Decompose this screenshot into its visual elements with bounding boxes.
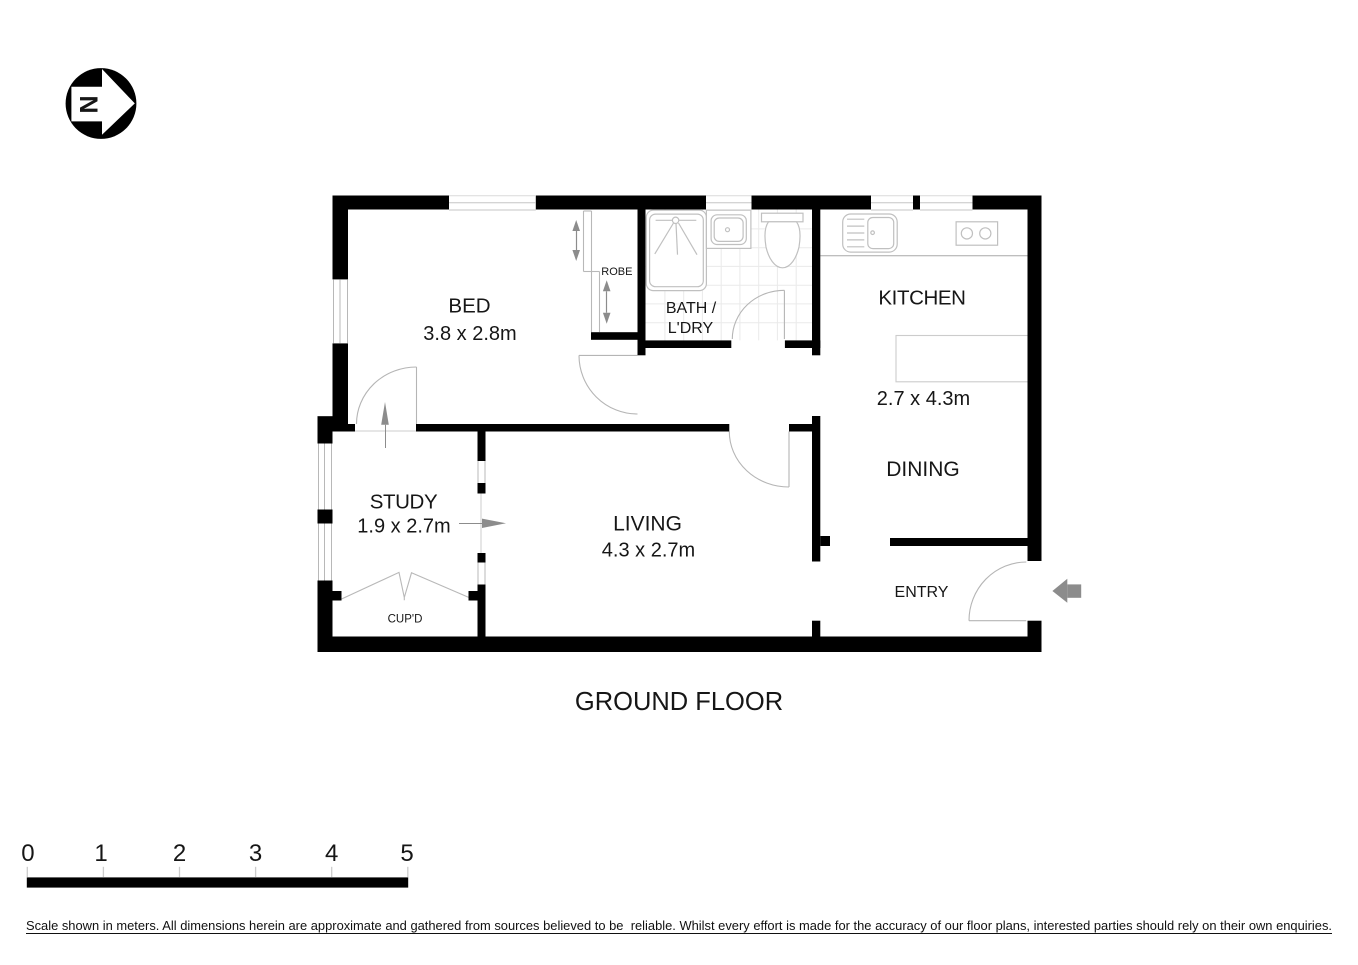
svg-text:CUP'D: CUP'D xyxy=(388,614,423,626)
svg-text:BED: BED xyxy=(448,295,490,318)
svg-text:1: 1 xyxy=(94,840,107,867)
svg-text:3: 3 xyxy=(249,840,262,867)
svg-text:BATH /: BATH / xyxy=(666,300,717,317)
svg-text:2: 2 xyxy=(173,840,186,867)
svg-text:N: N xyxy=(74,95,102,113)
svg-text:KITCHEN: KITCHEN xyxy=(878,287,965,310)
svg-text:ENTRY: ENTRY xyxy=(895,584,949,601)
svg-text:STUDY: STUDY xyxy=(370,491,438,514)
svg-text:ROBE: ROBE xyxy=(601,266,632,278)
svg-text:4: 4 xyxy=(325,840,338,867)
svg-text:5: 5 xyxy=(400,840,413,867)
svg-text:0: 0 xyxy=(21,840,34,867)
svg-text:1.9 x 2.7m: 1.9 x 2.7m xyxy=(357,516,450,538)
svg-text:4.3 x 2.7m: 4.3 x 2.7m xyxy=(602,540,695,562)
svg-text:L'DRY: L'DRY xyxy=(668,320,714,337)
svg-text:2.7 x 4.3m: 2.7 x 4.3m xyxy=(877,388,970,410)
svg-text:3.8 x 2.8m: 3.8 x 2.8m xyxy=(423,323,516,345)
svg-text:DINING: DINING xyxy=(886,458,960,481)
svg-text:GROUND FLOOR: GROUND FLOOR xyxy=(575,688,783,716)
svg-text:LIVING: LIVING xyxy=(613,513,682,536)
